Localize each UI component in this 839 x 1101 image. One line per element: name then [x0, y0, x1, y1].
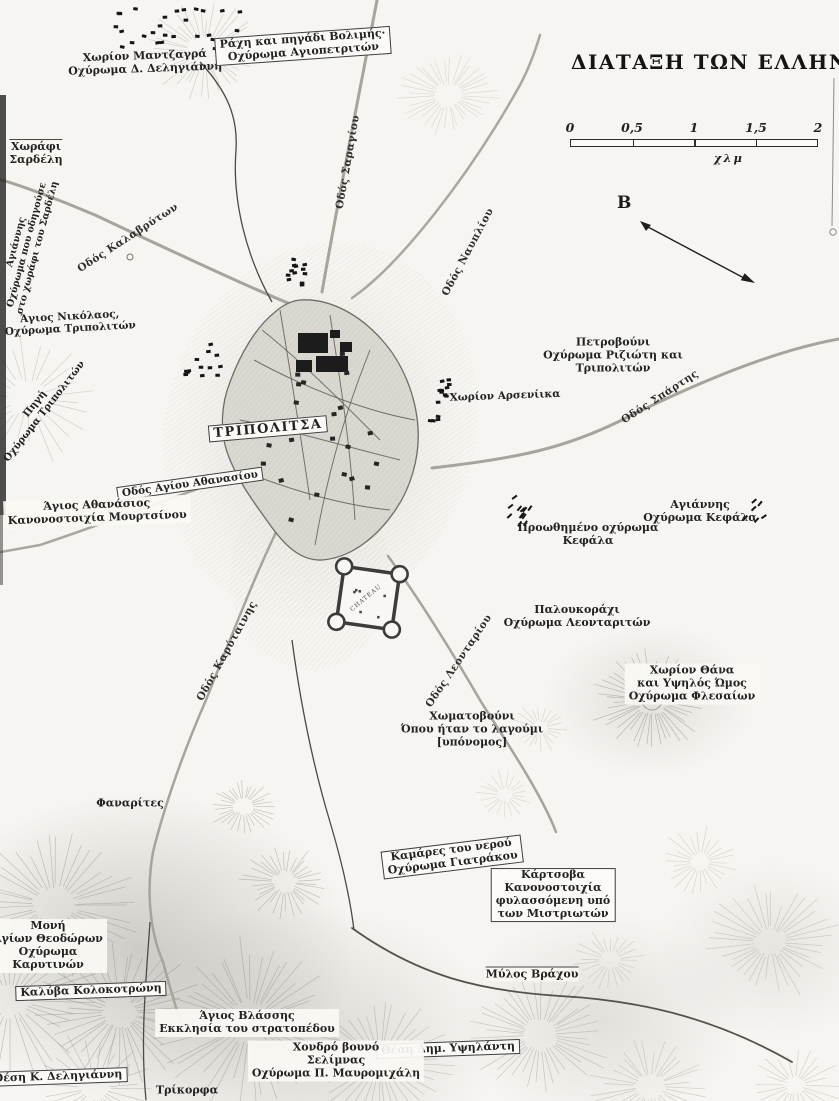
scale-unit-label: χλμ — [714, 151, 744, 165]
scale-tick-1: 1 — [690, 120, 699, 135]
map-label-line: Οχύρωμα — [19, 945, 78, 958]
map-label-line: Χωράφι — [11, 140, 61, 153]
scale-bar: 0 0,5 1 1,5 2 χλμ — [570, 120, 818, 166]
map-label-chondro-vouno: Χονδρό βουνόΣελίμναςΟχύρωμα Π. Μαυρομιχά… — [248, 1041, 424, 1082]
map-label-line: Οχύρωμα Π. Μαυρομιχάλη — [252, 1066, 420, 1079]
map-label-line: Χωματοβούνι — [429, 710, 515, 723]
map-label-chorion-mantzagra: Χωρίον ΜαντζαγράΟχύρωμα Δ. Δεληγιάννη — [68, 47, 223, 78]
map-label-line: των Μιστριωτών — [498, 907, 609, 920]
map-label-line: Φαναρίτες — [96, 797, 164, 810]
map-label-line: Μονή — [30, 919, 65, 932]
map-label-line: Μύλος Βράχου — [486, 968, 579, 981]
map-label-moni-theodoron: ΜονήΑγίων ΘεοδώρωνΟχύρωμαΚαρυτινών — [0, 919, 107, 973]
map-label-line: Αγίων Θεοδώρων — [0, 932, 103, 945]
map-label-line: Τριπολιτών — [576, 361, 651, 374]
map-label-line: Άγιος Βλάσσης — [199, 1009, 294, 1022]
scale-divider — [633, 140, 635, 146]
map-canvas: ΔΙΑΤΑΞΗ ΤΩΝ ΕΛΛΗΝΩΝ 0 0,5 1 1,5 2 χλμ B … — [0, 0, 839, 1101]
north-letter: B — [617, 193, 631, 213]
map-label-line: Θέση Κ. Δεληγιάννη — [0, 1067, 122, 1084]
scale-tick-0: 0 — [566, 120, 575, 135]
scale-tick-2: 2 — [814, 120, 823, 135]
map-label-line: Κεφάλα — [563, 534, 614, 547]
map-label-agiannis-kefala: ΑγιάννηςΟχύρωμα Κεφάλα — [643, 499, 756, 525]
map-label-trikorfa: Τρίκορφα — [156, 1085, 218, 1098]
map-label-line: Τρίκορφα — [156, 1084, 218, 1097]
map-label-line: Όπου ήταν το λαγούμι — [401, 723, 543, 736]
map-label-line: Κανονοστοιχία — [504, 881, 601, 894]
map-title: ΔΙΑΤΑΞΗ ΤΩΝ ΕΛΛΗΝΩΝ — [571, 50, 839, 74]
map-label-proothimeno-kefala: Προωθημένο οχύρωμαΚεφάλα — [518, 522, 659, 548]
map-label-line: Παλουκοράχι — [534, 603, 619, 616]
map-label-line: [υπόνομος] — [437, 735, 508, 748]
scale-divider — [694, 140, 696, 146]
map-label-line: Σελίμνας — [307, 1054, 365, 1067]
map-label-mylos-vrachou: Μύλος Βράχου — [486, 967, 579, 982]
map-label-line: φυλασσόμενη υπό — [496, 894, 611, 907]
scale-divider — [756, 140, 758, 146]
map-label-line: Καρυτινών — [12, 958, 83, 971]
map-label-line: Οχύρωμα Ριζιώτη και — [543, 349, 683, 362]
scale-bar-rule — [570, 139, 818, 147]
map-label-line: Οχύρωμα Κεφάλα — [643, 511, 756, 524]
map-label-agios-vlassis: Άγιος ΒλάσσηςΕκκλησία του στρατοπέδου — [155, 1009, 339, 1037]
map-label-line: Οχύρωμα Λεονταριτών — [504, 616, 651, 629]
map-label-line: Κάρτσοβα — [521, 868, 585, 881]
map-label-line: Σαρδέλη — [9, 153, 62, 166]
map-label-line: Προωθημένο οχύρωμα — [518, 521, 659, 534]
map-label-line: Εκκλησία του στρατοπέδου — [159, 1022, 335, 1035]
map-label-fanarites: Φαναρίτες — [96, 798, 164, 811]
map-label-line: Χωρίον Θάνα — [650, 664, 735, 677]
map-label-line: Χονδρό βουνό — [293, 1041, 380, 1054]
map-label-chorion-thana: Χωρίον Θάνακαι Υψηλός ΏμοςΟχύρωμα Φλεσαί… — [625, 664, 760, 705]
scale-tick-05: 0,5 — [621, 120, 643, 135]
map-label-petrovouni: ΠετροβούνιΟχύρωμα Ριζιώτη καιΤριπολιτών — [543, 337, 683, 376]
map-label-line: Οχύρωμα Φλεσαίων — [629, 689, 756, 702]
map-label-kartsova: ΚάρτσοβαΚανονοστοιχίαφυλασσόμενη υπότων … — [491, 868, 616, 922]
map-label-line: Αγιάννης — [670, 498, 730, 511]
map-label-paloukorachi: ΠαλουκοράχιΟχύρωμα Λεονταριτών — [504, 604, 651, 630]
map-label-line: και Υψηλός Ώμος — [637, 677, 747, 690]
map-label-chorafi-sardeli: ΧωράφιΣαρδέλη — [9, 139, 62, 167]
map-label-chomatovouni: ΧωματοβούνιΌπου ήταν το λαγούμι[υπόνομος… — [401, 711, 543, 750]
scale-tick-15: 1,5 — [745, 120, 767, 135]
map-label-line: Πετροβούνι — [576, 336, 650, 349]
